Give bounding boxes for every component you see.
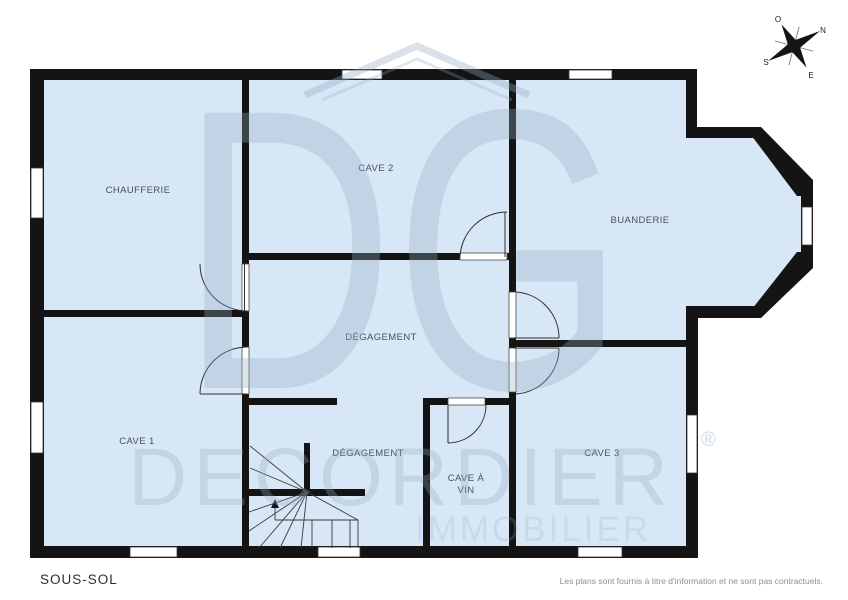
window-cave3 [687,415,697,473]
wall-corridor-bottom [249,398,337,405]
threshold-cave1 [242,347,249,394]
compass-east-label: E [808,71,813,80]
window-bottom-cave3 [578,547,622,557]
compass-west-label: O [775,15,781,24]
floorplan-page: { "page": { "floor_label": "SOUS-SOL", "… [0,0,848,600]
wall-left [30,69,44,558]
window-cave1 [31,402,43,453]
disclaimer-text: Les plans sont fournis à titre d'informa… [560,576,823,586]
wall-bay-bottom [686,306,756,318]
window-chaufferie [31,168,43,218]
compass-north-label: N [820,26,826,35]
threshold-caveavin [448,398,485,405]
compass-star-icon [756,9,833,82]
watermark-registered-icon: ® [701,429,716,451]
compass-south-label: S [763,58,768,67]
room-label-cave2: CAVE 2 [358,163,394,174]
wall-cave2-bottom [249,253,460,260]
window-bay [802,207,812,245]
wall-cave1-right [242,394,249,548]
room-label-chaufferie: CHAUFFERIE [106,185,171,196]
threshold-cave2 [460,253,507,260]
wall-caveavin-top-right [485,398,509,405]
wall-corridor-left-stub2 [242,311,249,347]
wall-caveavin-top-left [430,398,448,405]
room-label-cave1: CAVE 1 [119,436,155,447]
wall-cave2-buanderie [509,69,516,292]
threshold-cave3 [509,348,516,392]
wall-bay-top [686,127,756,138]
room-label-buanderie: BUANDERIE [610,215,669,226]
room-label-degagement-bas: DÉGAGEMENT [332,448,404,459]
wall-stair-stub [304,443,310,492]
window-cave2 [342,70,382,79]
floorplan-canvas: CHAUFFERIE CAVE 2 BUANDERIE DÉGAGEMENT C… [0,0,848,600]
wall-chaufferie-cave2 [242,69,249,259]
room-label-caveavin-line2: VIN [457,485,474,496]
window-bottom-cave1 [130,547,177,557]
compass-rose: O N S E [756,9,833,82]
window-bottom-stairs [318,547,360,557]
window-buanderie-top [569,70,612,79]
wall-chaufferie-cave1 [44,310,249,317]
footer: SOUS-SOL Les plans sont fournis à titre … [40,572,823,587]
room-label-degagement-haut: DÉGAGEMENT [345,332,417,343]
wall-caveavin-left [423,398,430,548]
room-label-cave3: CAVE 3 [584,448,620,459]
floor-title: SOUS-SOL [40,572,118,587]
threshold-buanderie [509,292,516,338]
wall-caveavin-right [509,398,516,548]
wall-buanderie-cave3 [509,340,692,347]
room-label-caveavin-line1: CAVE À [448,473,485,484]
wall-corridor-left-stub1 [242,253,249,264]
threshold-chaufferie [242,264,249,311]
